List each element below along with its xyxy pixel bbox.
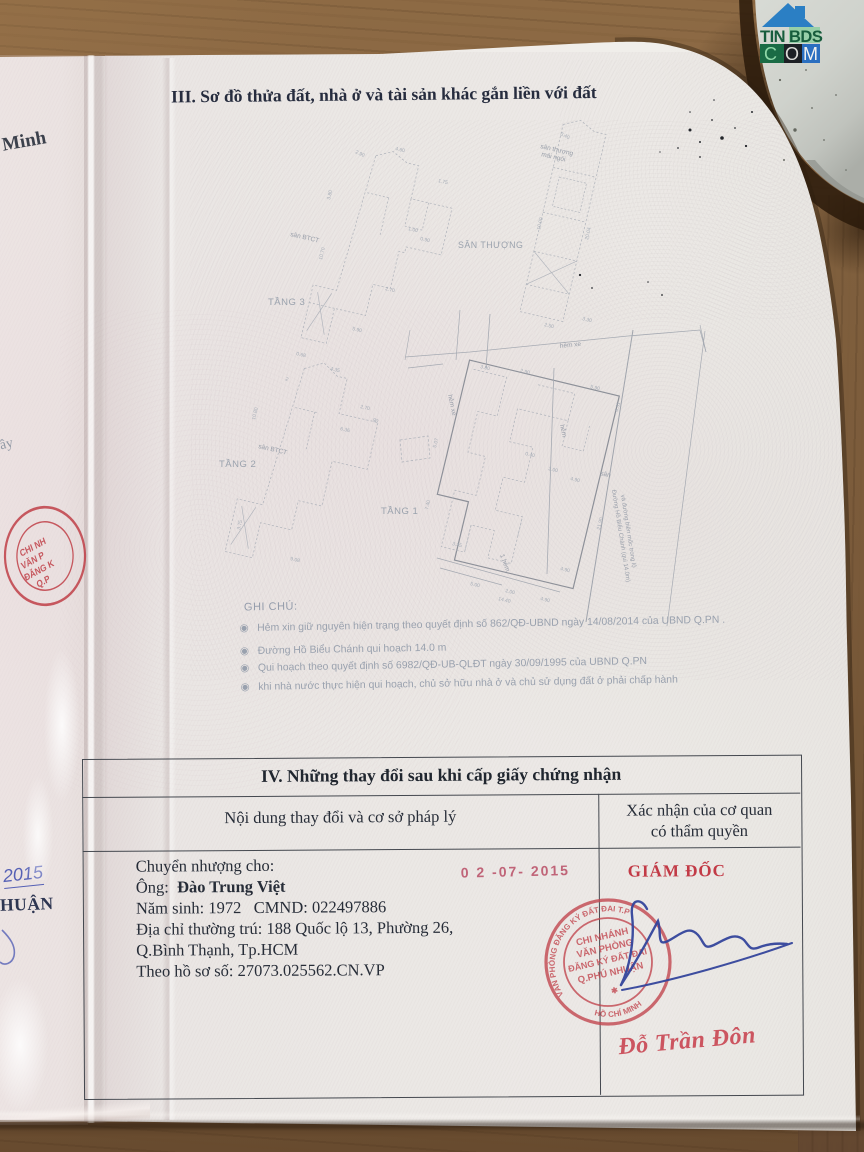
svg-text:5.90: 5.90: [352, 326, 363, 334]
svg-text:5.90: 5.90: [590, 384, 601, 392]
svg-text:14.40: 14.40: [498, 596, 512, 605]
svg-text:SÂN THƯỢNG: SÂN THƯỢNG: [458, 240, 523, 250]
svg-text:9.08: 9.08: [290, 556, 301, 564]
svg-text:2.70: 2.70: [385, 286, 396, 294]
svg-text:5.07: 5.07: [432, 437, 440, 448]
svg-text:Đỗ Trần Đôn: Đỗ Trần Đôn: [616, 1022, 757, 1060]
svg-text:hẻm xe: hẻm xe: [559, 341, 581, 350]
svg-text:4.90: 4.90: [540, 596, 551, 604]
svg-text:20.04: 20.04: [584, 227, 593, 241]
svg-text:TẦNG 3: TẦNG 3: [268, 297, 305, 308]
svg-text:10.70: 10.70: [318, 247, 327, 261]
svg-text:2.90: 2.90: [284, 376, 379, 425]
svg-text:sân BTCT: sân BTCT: [290, 231, 320, 244]
svg-text:3.40: 3.40: [559, 131, 571, 141]
svg-text:3.80: 3.80: [480, 364, 491, 372]
svg-text:1 hẻm: 1 hẻm: [498, 553, 511, 572]
svg-text:2.90: 2.90: [520, 368, 531, 376]
svg-text:4.90: 4.90: [560, 566, 571, 574]
svg-text:3.80: 3.80: [326, 189, 334, 200]
svg-text:6.36: 6.36: [340, 426, 351, 434]
svg-text:0.40: 0.40: [525, 451, 536, 459]
svg-text:21.90: 21.90: [596, 517, 605, 531]
svg-text:4.60: 4.60: [395, 146, 406, 154]
svg-text:3.75: 3.75: [236, 519, 244, 530]
svg-text:2.90: 2.90: [354, 149, 366, 159]
svg-text:3.35: 3.35: [452, 541, 463, 549]
svg-text:sân BTCT: sân BTCT: [258, 443, 288, 456]
svg-text:2.70: 2.70: [360, 404, 371, 412]
svg-text:1.00: 1.00: [408, 226, 419, 234]
svg-text:2.50: 2.50: [544, 322, 555, 330]
svg-text:3.30: 3.30: [582, 316, 593, 324]
svg-text:TẦNG 2: TẦNG 2: [219, 459, 256, 470]
svg-text:0.68: 0.68: [296, 351, 307, 359]
svg-text:TẦNG 1: TẦNG 1: [381, 506, 418, 517]
svg-text:✱: ✱: [610, 986, 619, 996]
svg-text:sân: sân: [600, 470, 612, 479]
svg-text:7.40: 7.40: [424, 499, 432, 510]
svg-text:hẻm xe: hẻm xe: [446, 394, 457, 417]
svg-text:2.00: 2.00: [505, 588, 516, 596]
svg-text:hẻm: hẻm: [558, 424, 567, 438]
svg-text:4.90: 4.90: [570, 476, 581, 484]
svg-text:HỒ CHÍ MINH: HỒ CHÍ MINH: [592, 998, 645, 1024]
svg-text:0.90: 0.90: [420, 236, 431, 244]
svg-text:10.80: 10.80: [251, 407, 260, 421]
svg-text:4.35: 4.35: [330, 366, 341, 374]
svg-text:5.00: 5.00: [470, 581, 481, 589]
svg-text:10.00: 10.00: [536, 217, 545, 231]
svg-text:2.00: 2.00: [548, 466, 559, 474]
svg-text:1.75: 1.75: [438, 178, 449, 186]
svg-text:4.31: 4.31: [614, 401, 622, 412]
